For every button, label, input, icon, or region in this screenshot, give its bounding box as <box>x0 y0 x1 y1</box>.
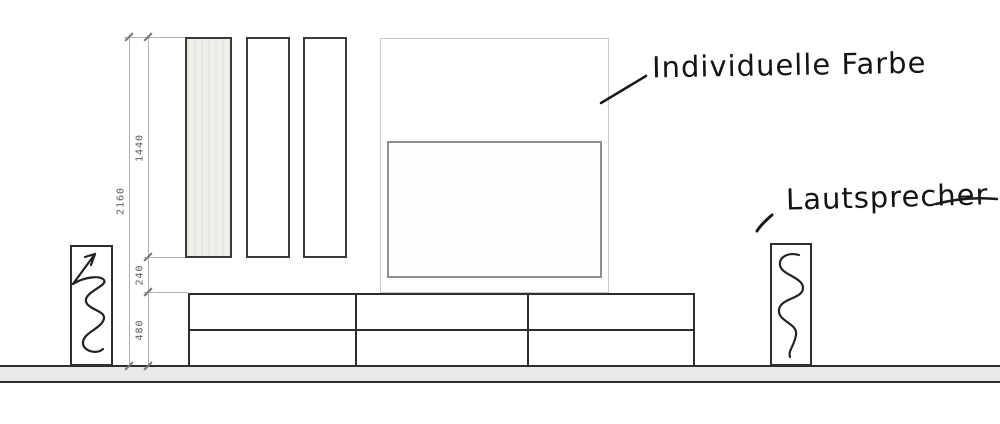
dimension-label-gap: 240 <box>135 264 146 285</box>
extension-line-lowboard-top <box>144 292 188 293</box>
extension-line-panel-bottom <box>144 257 185 258</box>
annotation-lautsprecher: Lautsprecher <box>786 177 989 216</box>
floor-band <box>0 365 1000 383</box>
wall-panel-2 <box>246 37 290 258</box>
wall-panel-1 <box>185 37 232 258</box>
dimension-label-lowboard: 480 <box>135 319 146 340</box>
speaker-tower-right <box>770 243 812 366</box>
wall-panel-3 <box>303 37 347 258</box>
lowboard-divider-horizontal <box>189 329 694 331</box>
dimension-line-segments <box>148 37 149 366</box>
dimension-label-total: 2160 <box>116 187 127 215</box>
dimension-label-panels: 1440 <box>135 134 146 162</box>
tv-screen <box>387 141 602 278</box>
speaker-tower-left <box>70 245 113 366</box>
annotation-individuelle-farbe: Individuelle Farbe <box>652 46 927 85</box>
leader-mark-lautsprecher <box>757 215 772 231</box>
elevation-drawing: 2160 1440 240 480 Individuelle Farbe Lau… <box>0 0 1000 424</box>
extension-line-top <box>124 37 185 38</box>
dimension-line-total <box>129 37 130 366</box>
